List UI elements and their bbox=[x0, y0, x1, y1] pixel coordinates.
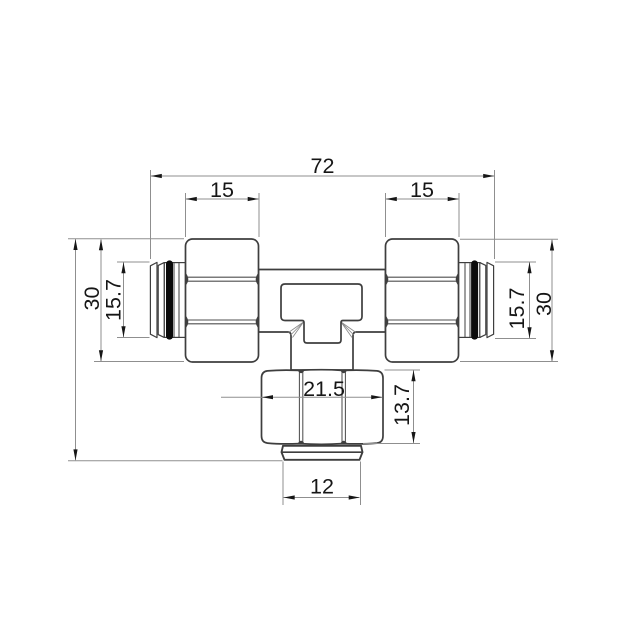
svg-text:15: 15 bbox=[210, 178, 234, 202]
svg-text:12: 12 bbox=[310, 475, 334, 499]
svg-text:15.7: 15.7 bbox=[102, 279, 126, 321]
svg-text:30: 30 bbox=[532, 292, 556, 316]
svg-text:21.5: 21.5 bbox=[303, 377, 345, 401]
svg-text:72: 72 bbox=[311, 154, 335, 178]
svg-text:30: 30 bbox=[80, 287, 104, 311]
svg-text:13.7: 13.7 bbox=[390, 384, 414, 426]
svg-text:15.7: 15.7 bbox=[505, 288, 529, 330]
svg-text:15: 15 bbox=[410, 178, 434, 202]
